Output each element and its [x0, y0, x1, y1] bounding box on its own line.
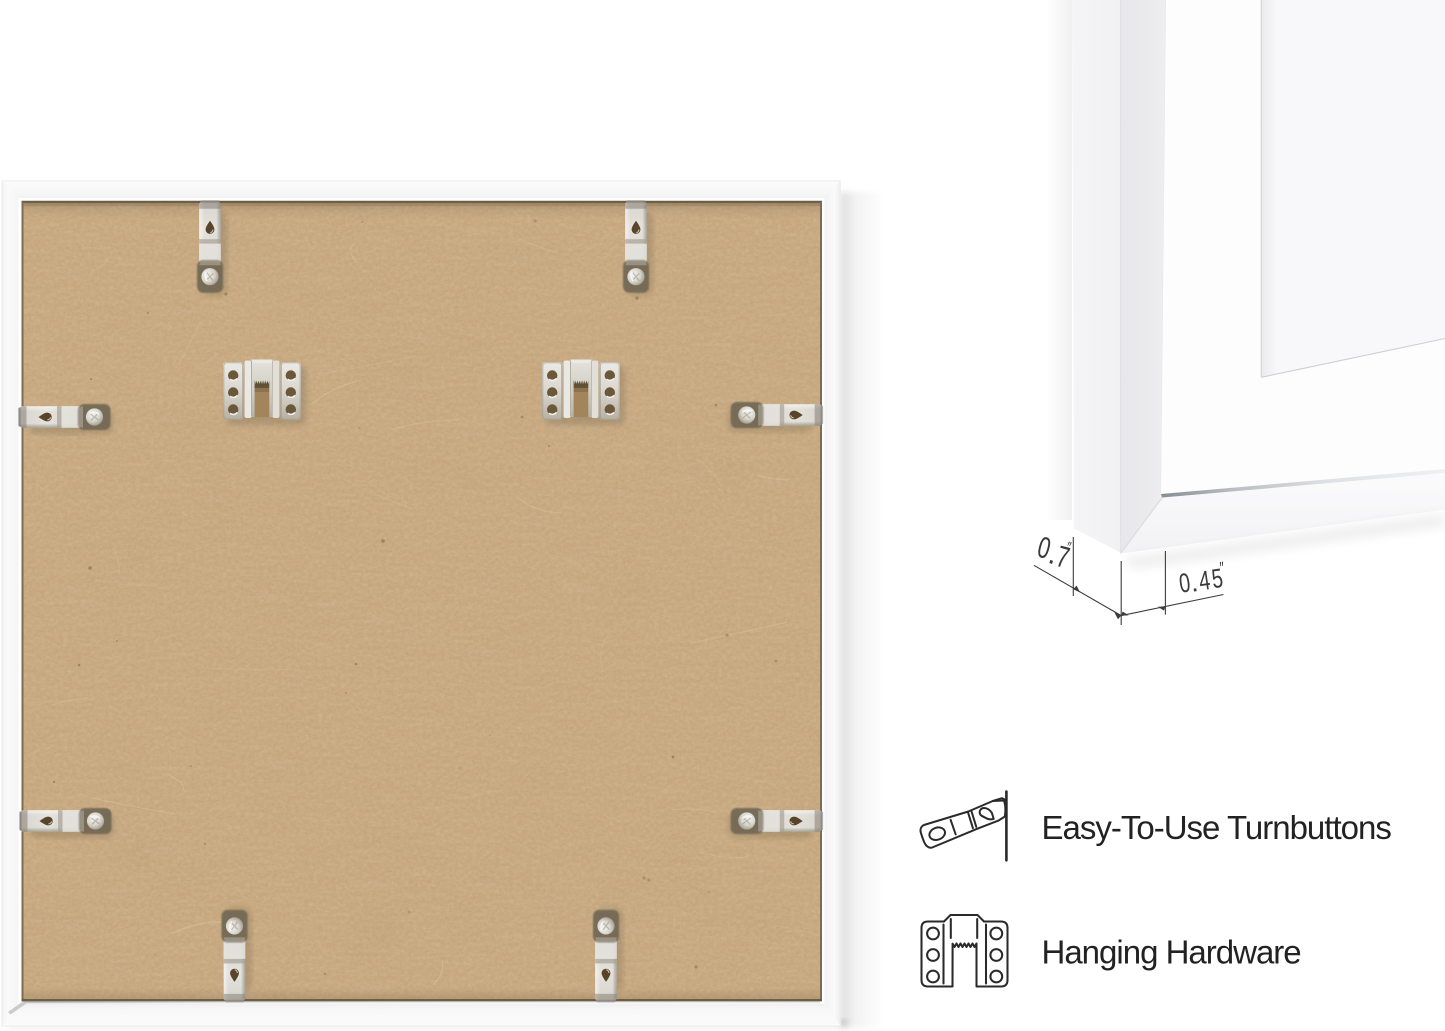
svg-text:Hanging Hardware: Hanging Hardware	[1042, 934, 1301, 971]
svg-text:Easy-To-Use Turnbuttons: Easy-To-Use Turnbuttons	[1042, 809, 1392, 846]
